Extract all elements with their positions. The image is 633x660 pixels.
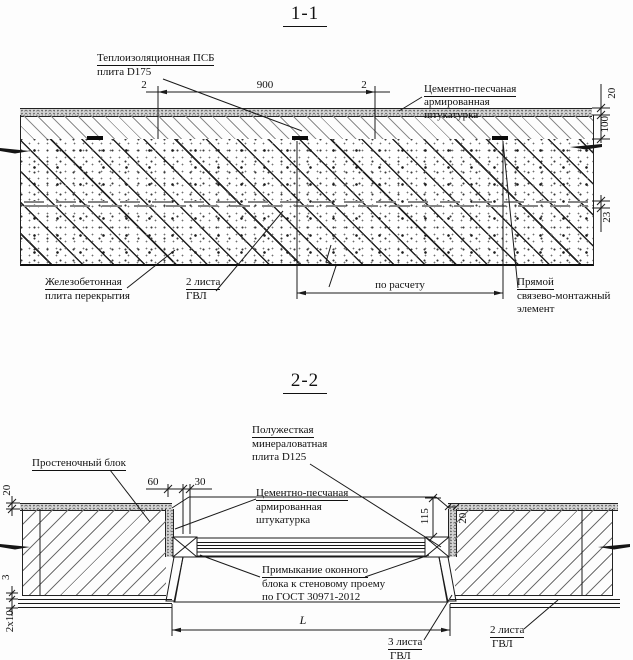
anchor-label-line1: Прямой bbox=[517, 276, 554, 290]
insulation-label-line1: Теплоизоляционная ПСБ bbox=[97, 52, 214, 66]
joint-label-line3: по ГОСТ 30971-2012 bbox=[262, 591, 360, 604]
section-1-title: 1-1 bbox=[283, 3, 327, 27]
joint-label-line1: Примыкание оконного bbox=[262, 564, 368, 578]
dimension-spacing bbox=[297, 141, 503, 299]
dimension-L bbox=[172, 604, 450, 636]
gvl2-label-line1: 2 листа bbox=[490, 624, 524, 638]
minwool-label-line3: плита D125 bbox=[252, 451, 306, 464]
dim-900: 900 bbox=[245, 79, 285, 92]
dim-115: 115 bbox=[419, 504, 432, 528]
insulation-label-line2: плита D175 bbox=[97, 66, 151, 79]
plaster-label-line3: штукатурка bbox=[424, 109, 478, 122]
dim-60: 60 bbox=[143, 476, 163, 489]
window-frame bbox=[173, 537, 449, 557]
slab-label-line2: плита перекрытия bbox=[45, 290, 130, 303]
break-zigzag bbox=[326, 245, 336, 287]
minwool-label-line2: минераловатная bbox=[252, 438, 327, 451]
dim-2x10: 2x10 bbox=[4, 607, 17, 635]
dim-3: 3 bbox=[0, 569, 12, 585]
pier-block-label: Простеночный блок bbox=[32, 457, 126, 471]
slab-label-line1: Железобетонная bbox=[45, 276, 122, 290]
drawing-lines bbox=[0, 0, 633, 660]
gvl3-label-line2: ГВЛ bbox=[390, 650, 411, 660]
dim-L: L bbox=[295, 614, 311, 627]
dim-30: 30 bbox=[190, 476, 210, 489]
dim-spacing: по расчету bbox=[355, 279, 445, 292]
construction-detail-drawing: 1-1 2-2 bbox=[0, 0, 633, 660]
dim-100: 100 bbox=[599, 112, 612, 136]
dimension-900 bbox=[146, 86, 390, 139]
dim-20: 20 bbox=[606, 83, 619, 103]
gvl-label-line2: ГВЛ bbox=[186, 290, 207, 303]
break-mark-left-s1 bbox=[0, 148, 30, 156]
break-mark-right-s2 bbox=[598, 544, 630, 552]
anchor-label-line3: элемент bbox=[517, 303, 554, 316]
plaster-label-line1: Цементно-песчаная bbox=[424, 83, 516, 97]
gvl3-label-line1: 3 листа bbox=[388, 636, 422, 650]
gvl2-label-line2: ГВЛ bbox=[492, 638, 513, 651]
anchor-label-line2: связево-монтажный bbox=[517, 290, 610, 303]
break-mark-left-s2 bbox=[0, 544, 30, 552]
plaster-label-line2: армированная bbox=[424, 96, 490, 109]
joint-label-line2: блока к стеновому проему bbox=[262, 578, 385, 591]
section-2-title: 2-2 bbox=[283, 370, 327, 394]
break-mark-right-s1 bbox=[570, 144, 602, 152]
dim-20-left-label: 20 bbox=[1, 480, 14, 500]
minwool-label-line1: Полужесткая bbox=[252, 424, 314, 438]
dim-2-left: 2 bbox=[136, 79, 152, 92]
plaster2-label-line2: армированная bbox=[256, 501, 322, 514]
dim-23: 23 bbox=[601, 207, 614, 227]
gvl-label-line1: 2 листа bbox=[186, 276, 220, 290]
dimension-60-30 bbox=[146, 484, 212, 534]
plaster2-label-line3: штукатурка bbox=[256, 514, 310, 527]
plaster2-label-line1: Цементно-песчаная bbox=[256, 487, 348, 501]
dim-2-right: 2 bbox=[356, 79, 372, 92]
dim-20-right-label: 20 bbox=[457, 508, 470, 528]
